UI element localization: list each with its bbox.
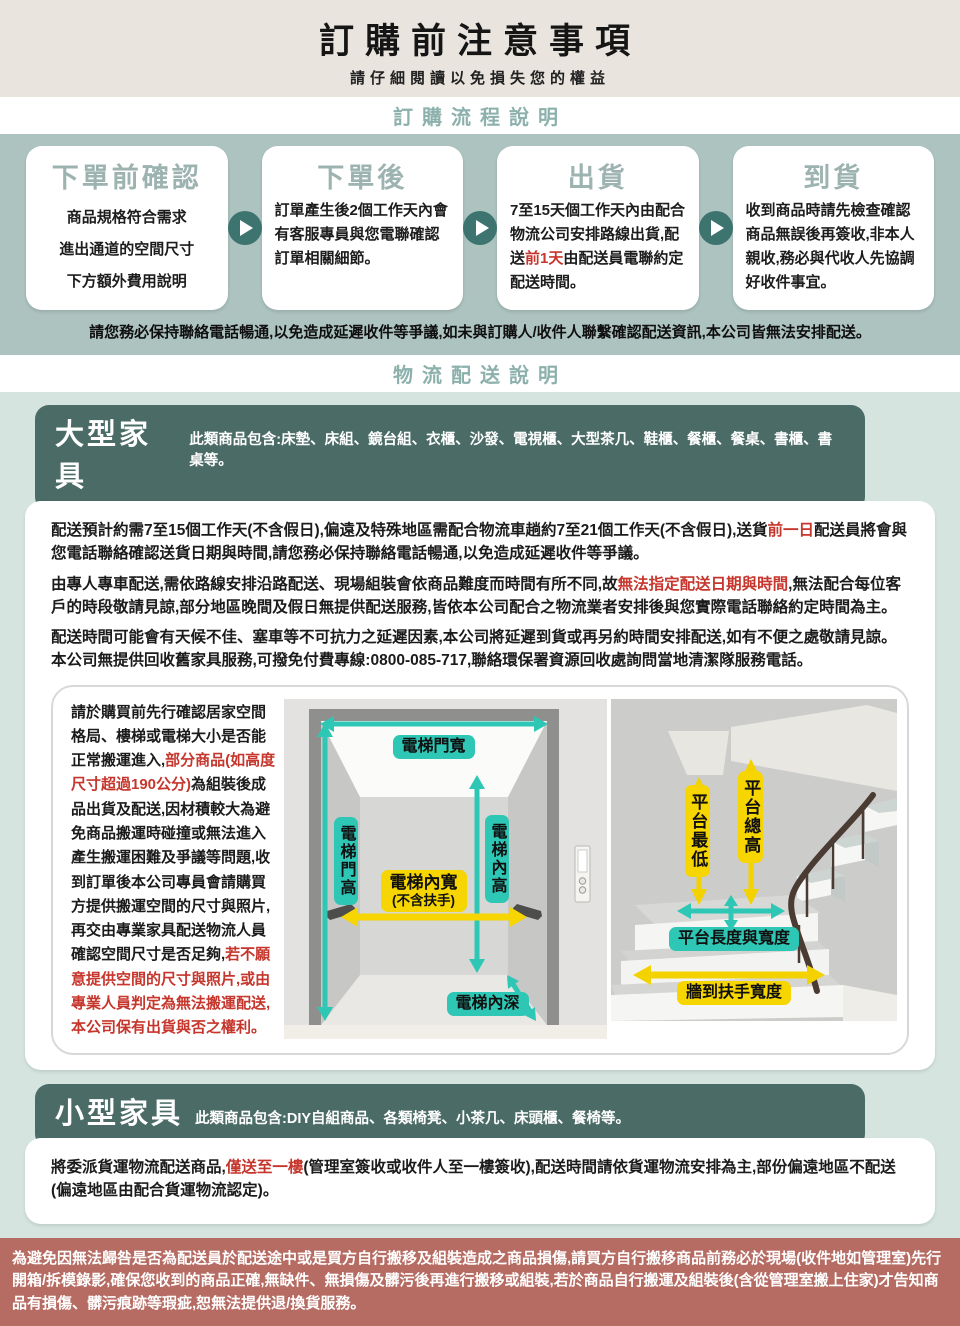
step-body: 訂單產生後2個工作天內會有客服專員與您電聯確認訂單相關細節。 [275, 199, 451, 271]
step-title: 下單前確認 [39, 156, 215, 195]
process-section-label: 訂購流程說明 [393, 107, 567, 129]
small-furniture-title: 小型家具 [55, 1090, 183, 1132]
step-title: 下單後 [275, 156, 451, 195]
large-furniture-title: 大型家具 [55, 411, 177, 495]
steps-row: 下單前確認 商品規格符合需求 進出通道的空間尺寸 下方額外費用說明 下單後 訂單… [26, 146, 934, 310]
logistics-section: 大型家具 此類商品包含:床墊、床組、鏡台組、衣櫃、沙發、電視櫃、大型茶几、鞋櫃、… [0, 392, 960, 1238]
large-furniture-box: 配送預計約需7至15個工作天(不含假日),偏遠及特殊地區需配合物流車趟約7至21… [25, 501, 935, 1070]
stair-platform-total-label: 平台總高 [738, 771, 763, 863]
measurement-diagram-box: 請於購買前先行確認居家空間格局、樓梯或電梯大小是否能正常搬運進入,部分商品(如高… [51, 685, 909, 1055]
elevator-door-height-label: 電梯門高 [334, 817, 358, 905]
elevator-door-width-label: 電梯門寬 [392, 735, 474, 759]
elevator-inner-depth-label: 電梯內深 [447, 992, 529, 1016]
step-line: 商品規格符合需求 [39, 206, 215, 227]
step-line: 進出通道的空間尺寸 [39, 238, 215, 259]
step-body: 收到商品時請先檢查確認商品無誤後再簽收,非本人親收,務必與代收人先協調好收件事宜… [746, 199, 922, 295]
hero-banner: 訂購前注意事項 請仔細閱讀以免損失您的權益 [0, 0, 960, 97]
arrow-triangle-icon [711, 220, 724, 236]
stair-platform-length-width-label: 平台長度與寬度 [669, 927, 799, 951]
step-line: 下方額外費用說明 [39, 270, 215, 291]
step-lines: 商品規格符合需求 進出通道的空間尺寸 下方額外費用說明 [39, 206, 215, 291]
step-card-arrival: 到貨 收到商品時請先檢查確認商品無誤後再簽收,非本人親收,務必與代收人先協調好收… [733, 146, 935, 310]
step-body-highlight: 前1天 [525, 250, 563, 267]
step-body: 7至15天個工作天內由配合物流公司安排路線出貨,配送前1天由配送員電聯約定配送時… [510, 199, 686, 295]
step-card-shipping: 出貨 7至15天個工作天內由配合物流公司安排路線出貨,配送前1天由配送員電聯約定… [497, 146, 699, 310]
small-furniture-includes: 此類商品包含:DIY自組商品、各類椅凳、小茶几、床頭櫃、餐椅等。 [195, 1107, 630, 1128]
space-confirmation-note: 請於購買前先行確認居家空間格局、樓梯或電梯大小是否能正常搬運進入,部分商品(如高… [63, 699, 279, 1041]
paragraph-text: 配送預計約需7至15個工作天(不含假日),偏遠及特殊地區需配合物流車趟約7至21… [51, 522, 768, 539]
arrow-triangle-icon [476, 220, 489, 236]
paragraph-highlight: 僅送至一樓 [226, 1159, 304, 1176]
delivery-paragraph-2: 由專人專車配送,需依路線安排沿路配送、現場組裝會依商品難度而時間有所不同,故無法… [51, 573, 909, 620]
logistics-section-label: 物流配送說明 [393, 365, 567, 387]
arrow-right-icon [228, 211, 262, 245]
elevator-inner-width-line2: (不含扶手) [390, 893, 458, 910]
process-warning-text: 請您務必保持聯絡電話暢通,以免造成延遲收件等爭議,如未與訂購人/收件人聯繫確認配… [26, 310, 934, 351]
spacer [0, 1070, 960, 1084]
stair-platform-min-label: 平台最低 [685, 785, 710, 877]
paragraph-text: 由專人專車配送,需依路線安排沿路配送、現場組裝會依商品難度而時間有所不同,故 [51, 576, 618, 593]
page-title: 訂購前注意事項 [0, 13, 960, 64]
elevator-inner-height-label: 電梯內高 [485, 815, 509, 903]
order-process-section: 下單前確認 商品規格符合需求 進出通道的空間尺寸 下方額外費用說明 下單後 訂單… [0, 134, 960, 355]
paragraph-text: 將委派貨運物流配送商品, [51, 1159, 226, 1176]
arrow-triangle-icon [240, 220, 253, 236]
large-furniture-includes: 此類商品包含:床墊、床組、鏡台組、衣櫃、沙發、電視櫃、大型茶几、鞋櫃、餐櫃、餐桌… [189, 428, 845, 470]
arrow-right-icon [463, 211, 497, 245]
page-subtitle: 請仔細閱讀以免損失您的權益 [0, 67, 960, 88]
small-furniture-box: 將委派貨運物流配送商品,僅送至一樓(管理室簽收或收件人至一樓簽收),配送時間請依… [25, 1138, 935, 1225]
paragraph-highlight: 無法指定配送日期與時間 [618, 576, 789, 593]
staircase-diagram: 平台最低 平台總高 平台長度與寬度 牆到扶手寬度 [611, 699, 897, 1021]
step-card-before-order: 下單前確認 商品規格符合需求 進出通道的空間尺寸 下方額外費用說明 [26, 146, 228, 310]
elevator-diagram: 電梯門寬 電梯門高 電梯內高 電梯內寬 (不含扶手) 電梯內深 [284, 699, 607, 1039]
elevator-inner-width-label: 電梯內寬 (不含扶手) [381, 870, 467, 912]
stair-wall-to-rail-label: 牆到扶手寬度 [677, 981, 791, 1005]
step-card-after-order: 下單後 訂單產生後2個工作天內會有客服專員與您電聯確認訂單相關細節。 [262, 146, 464, 310]
note-text: 為組裝後成品出貨及配送,因材積較大為避免商品搬運時碰撞或無法進入產生搬運困難及爭… [71, 776, 270, 963]
delivery-paragraph-1: 配送預計約需7至15個工作天(不含假日),偏遠及特殊地區需配合物流車趟約7至21… [51, 519, 909, 566]
step-title: 出貨 [510, 156, 686, 195]
small-furniture-paragraph: 將委派貨運物流配送商品,僅送至一樓(管理室簽收或收件人至一樓簽收),配送時間請依… [51, 1156, 909, 1203]
large-furniture-header: 大型家具 此類商品包含:床墊、床組、鏡台組、衣櫃、沙發、電視櫃、大型茶几、鞋櫃、… [35, 405, 865, 511]
delivery-paragraph-3: 配送時間可能會有天候不佳、塞車等不可抗力之延遲因素,本公司將延遲到貨或再另約時間… [51, 626, 909, 673]
elevator-inner-width-line1: 電梯內寬 [390, 872, 458, 893]
process-section-band: 訂購流程說明 [0, 97, 960, 134]
arrow-right-icon [699, 211, 733, 245]
step-title: 到貨 [746, 156, 922, 195]
unboxing-disclaimer: 為避免因無法歸咎是否為配送員於配送途中或是買方自行搬移及組裝造成之商品損傷,請買… [0, 1238, 960, 1326]
logistics-section-band: 物流配送說明 [0, 355, 960, 392]
paragraph-highlight: 前一日 [768, 522, 815, 539]
